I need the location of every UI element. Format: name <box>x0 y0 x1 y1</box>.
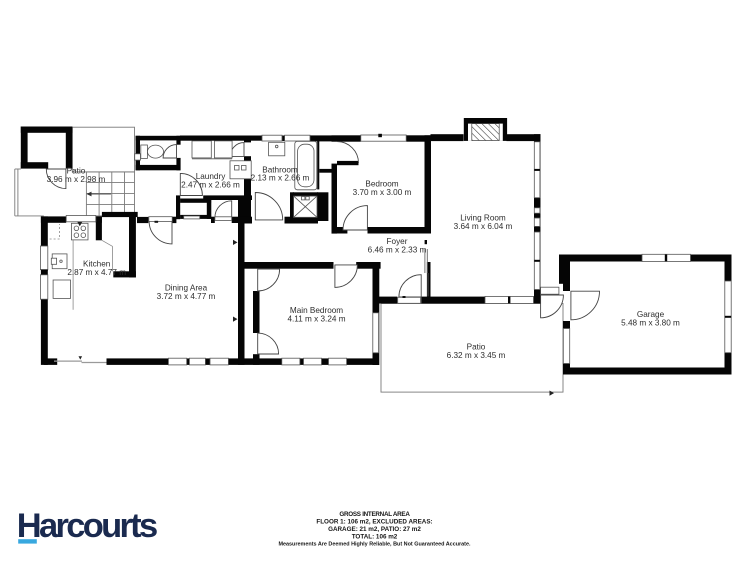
svg-text:4.11 m x 3.24 m: 4.11 m x 3.24 m <box>287 314 345 323</box>
svg-text:5.48 m x 3.80 m: 5.48 m x 3.80 m <box>621 319 680 328</box>
svg-text:3.64 m x 6.04 m: 3.64 m x 6.04 m <box>454 222 513 231</box>
svg-text:GROSS INTERNAL AREA: GROSS INTERNAL AREA <box>339 511 410 518</box>
svg-text:2.13 m x 2.66 m: 2.13 m x 2.66 m <box>251 173 310 182</box>
svg-text:TOTAL: 106 m2: TOTAL: 106 m2 <box>352 534 398 541</box>
svg-text:2.47 m x 2.66 m: 2.47 m x 2.66 m <box>181 180 240 189</box>
svg-text:3.96 m x 2.98 m: 3.96 m x 2.98 m <box>47 175 106 184</box>
svg-text:Measurements Are Deemed Highly: Measurements Are Deemed Highly Reliable,… <box>278 542 471 548</box>
svg-text:6.32 m x 3.45 m: 6.32 m x 3.45 m <box>447 351 506 360</box>
svg-text:3.72 m x 4.77 m: 3.72 m x 4.77 m <box>157 292 216 301</box>
svg-text:2.87 m x 4.77 m: 2.87 m x 4.77 m <box>67 268 126 277</box>
svg-text:6.46 m x 2.33 m: 6.46 m x 2.33 m <box>368 246 427 255</box>
svg-text:Harcourts: Harcourts <box>17 507 157 545</box>
svg-text:GARAGE: 21 m2, PATIO: 27 m2: GARAGE: 21 m2, PATIO: 27 m2 <box>328 526 421 533</box>
svg-text:FLOOR 1: 106 m2, EXCLUDED AREA: FLOOR 1: 106 m2, EXCLUDED AREAS: <box>316 519 432 526</box>
svg-text:3.70 m x 3.00 m: 3.70 m x 3.00 m <box>353 188 412 197</box>
